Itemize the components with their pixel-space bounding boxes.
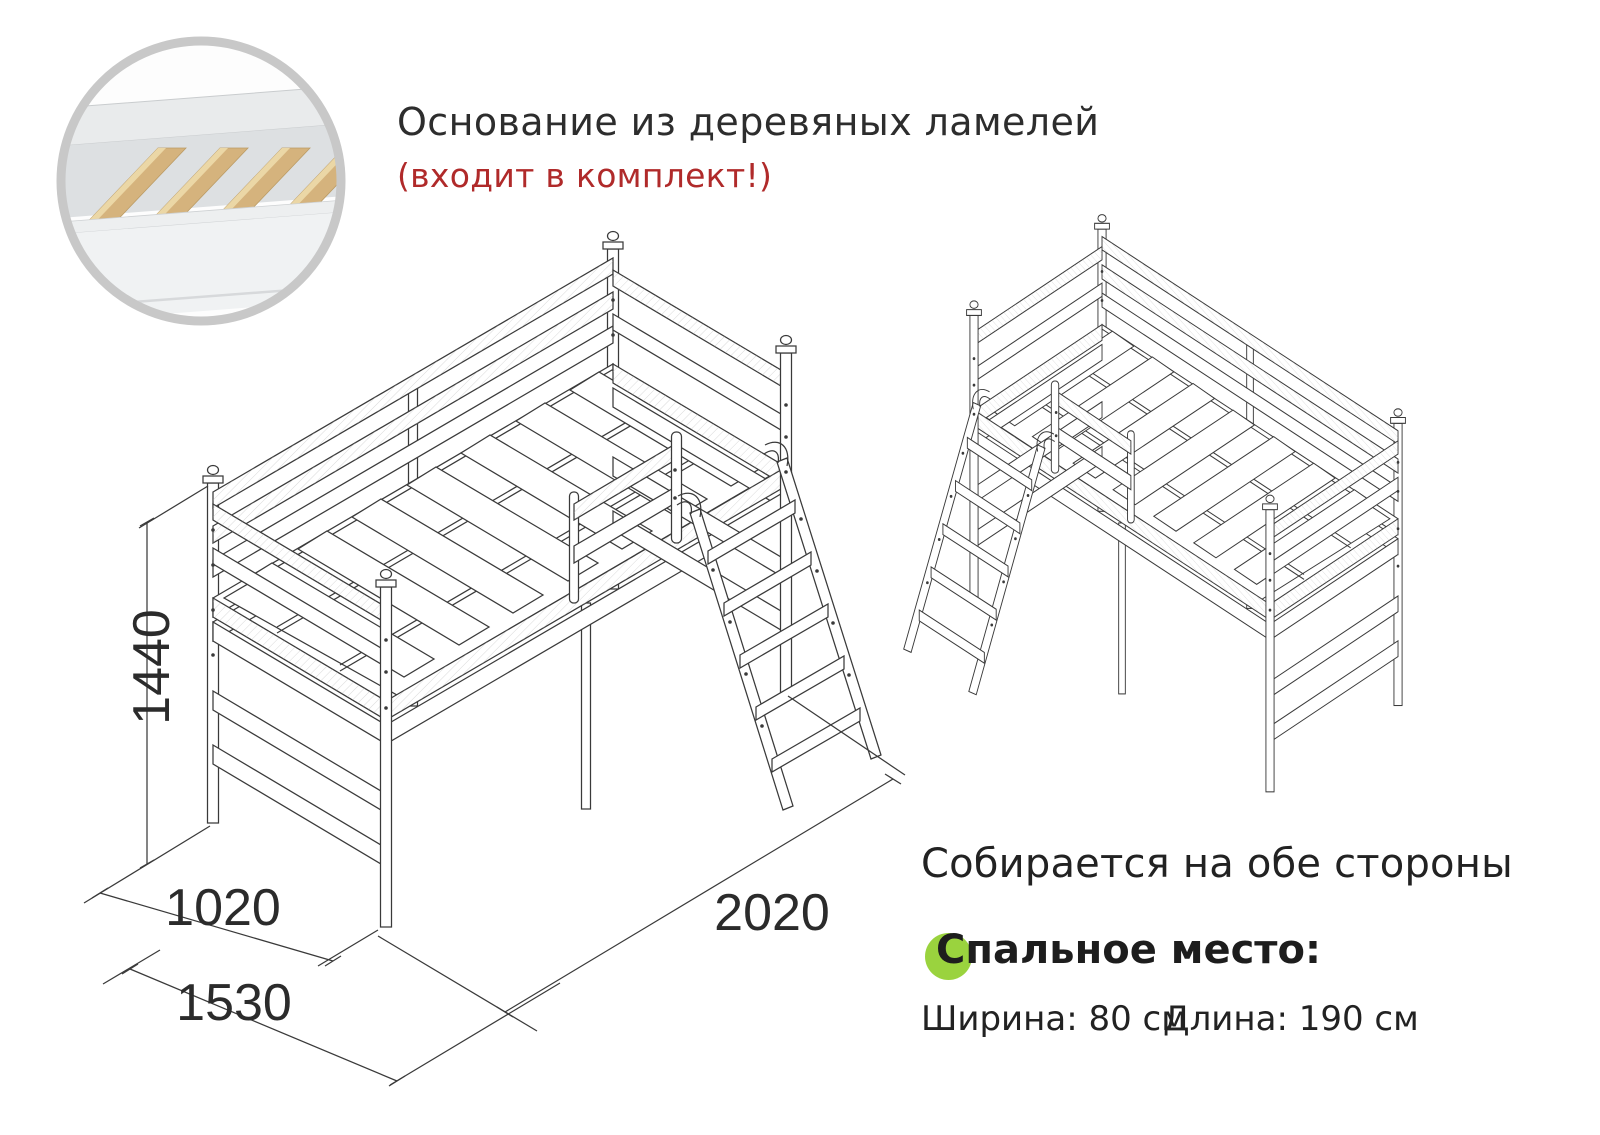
product-infographic: 1440 1020 1530 2020	[0, 0, 1600, 1135]
included-note: (входит в комплект!)	[397, 157, 772, 195]
loft-bed-right-view-mirrored	[904, 215, 1406, 792]
dim-height-label: 1440	[123, 609, 181, 725]
dim-width-label: 1020	[165, 879, 281, 937]
sleeping-width-value: Ширина: 80 см	[921, 1000, 1187, 1039]
sleeping-length-value: Длина: 190 см	[1163, 1000, 1419, 1039]
assemble-both-sides-note: Собирается на обе стороны	[921, 841, 1513, 887]
slats-detail-inset	[55, 35, 434, 335]
technical-drawing-canvas: 1440 1020 1530 2020	[0, 0, 1600, 1135]
dim-total-width-label: 1530	[176, 974, 292, 1032]
loft-bed-left-view	[203, 232, 881, 928]
page-title: Основание из деревяных ламелей	[397, 101, 1099, 145]
sleeping-place-heading: Спальное место:	[936, 927, 1321, 973]
dim-length-label: 2020	[714, 884, 830, 942]
